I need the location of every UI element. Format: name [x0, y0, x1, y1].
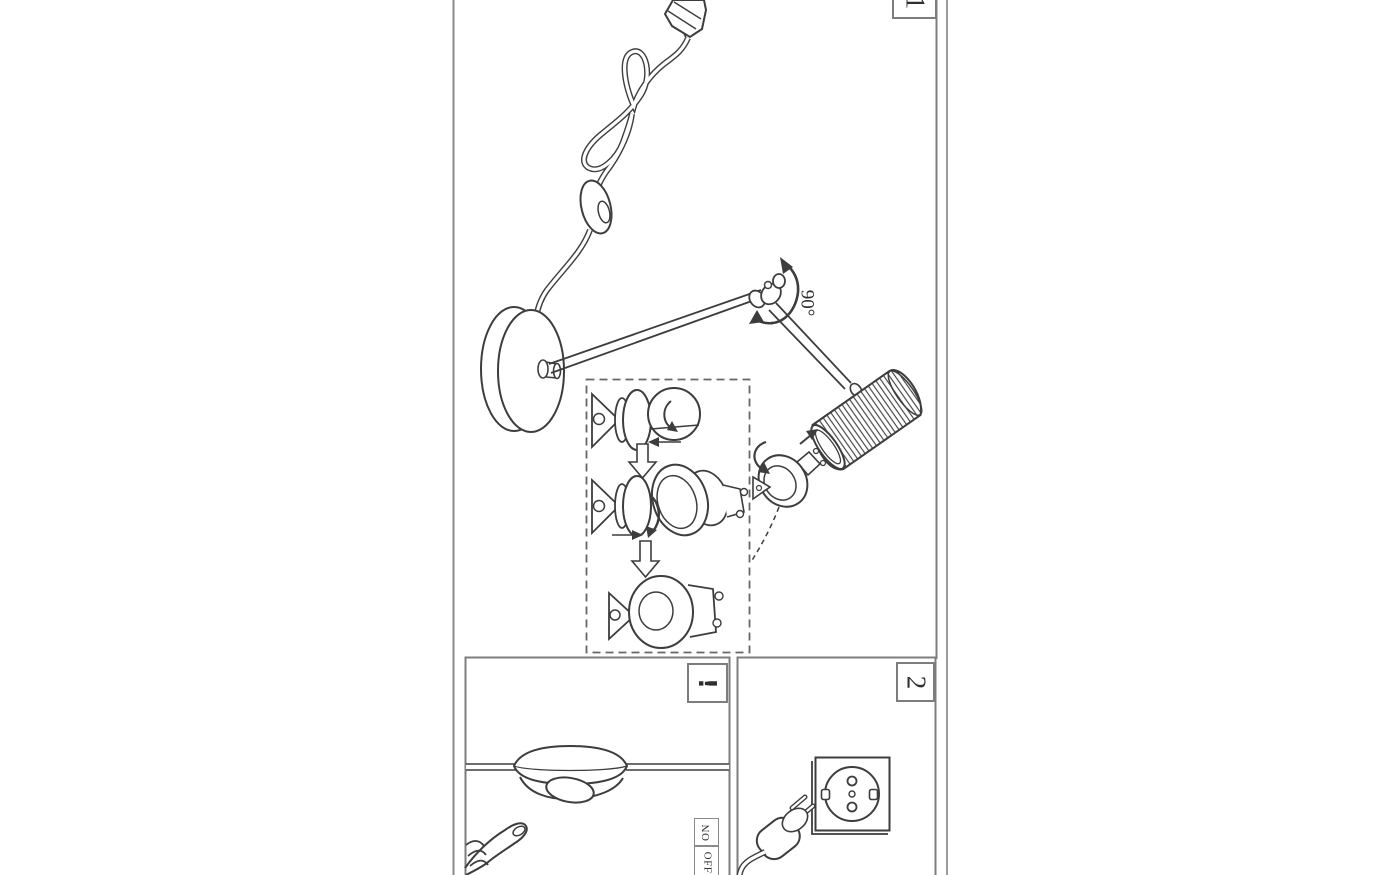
- bulb-install-inset: [587, 380, 750, 653]
- leader-dashed-line: [751, 507, 779, 562]
- wall-mount-disc-drawing: [481, 307, 564, 432]
- cord-to-base-drawing: [536, 230, 590, 318]
- lamp-head-drawing: [806, 366, 927, 473]
- warning-badge: !: [687, 663, 728, 703]
- insert-arrow-icon: [800, 435, 811, 444]
- assembly-diagram: [0, 0, 1400, 875]
- panel-1-number: 1: [901, 0, 928, 9]
- switch-off-label-box: OFF: [694, 846, 719, 875]
- switch-on-label-box: ON: [694, 818, 719, 846]
- panel-1-number-badge: 1: [892, 0, 937, 19]
- inline-switch-drawing: [575, 177, 616, 236]
- elbow-joint-drawing: [746, 274, 785, 310]
- wall-socket-drawing: [812, 758, 890, 835]
- cable-knot-drawing: [584, 38, 688, 192]
- warning-exclamation-icon: !: [695, 677, 720, 688]
- manual-page: 1 90° ! ON OFF 2: [0, 0, 1400, 875]
- panel-2-number: 2: [902, 675, 929, 689]
- panel-2-number-badge: 2: [896, 662, 935, 702]
- power-plug-drawing: [665, 0, 706, 41]
- gu10-bulb-drawing: [749, 429, 826, 562]
- rotation-angle-label: 90°: [789, 278, 823, 328]
